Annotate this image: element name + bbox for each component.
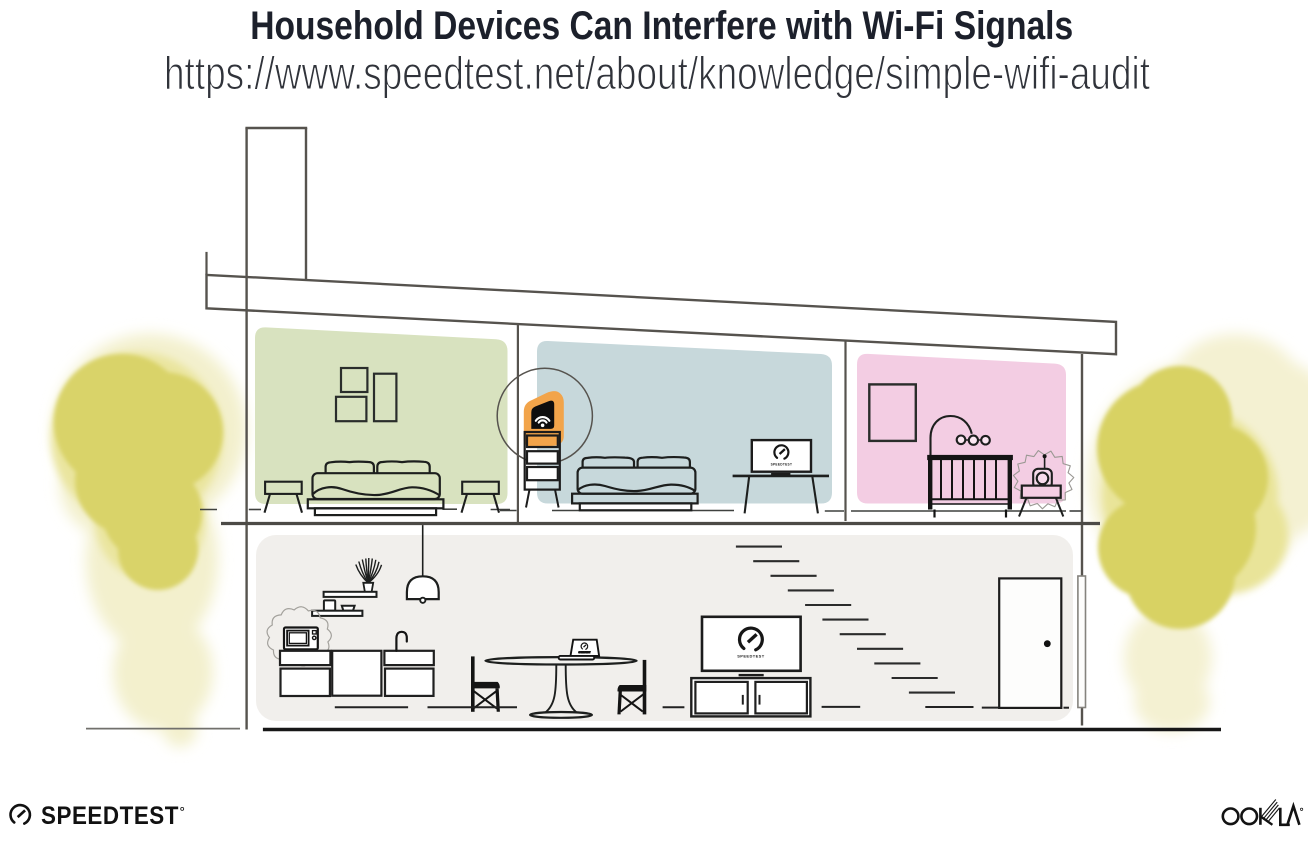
svg-text:Household Devices Can Interfer: Household Devices Can Interfere with Wi-… (250, 4, 1073, 48)
svg-text:SPEEDTEST: SPEEDTEST (771, 463, 793, 467)
svg-text:https://www.speedtest.net/abou: https://www.speedtest.net/about/knowledg… (164, 47, 1150, 99)
svg-text:SPEEDTEST: SPEEDTEST (737, 653, 765, 658)
svg-text:SPEEDTEST: SPEEDTEST (578, 652, 591, 654)
svg-text:SPEEDTEST: SPEEDTEST (41, 802, 179, 830)
